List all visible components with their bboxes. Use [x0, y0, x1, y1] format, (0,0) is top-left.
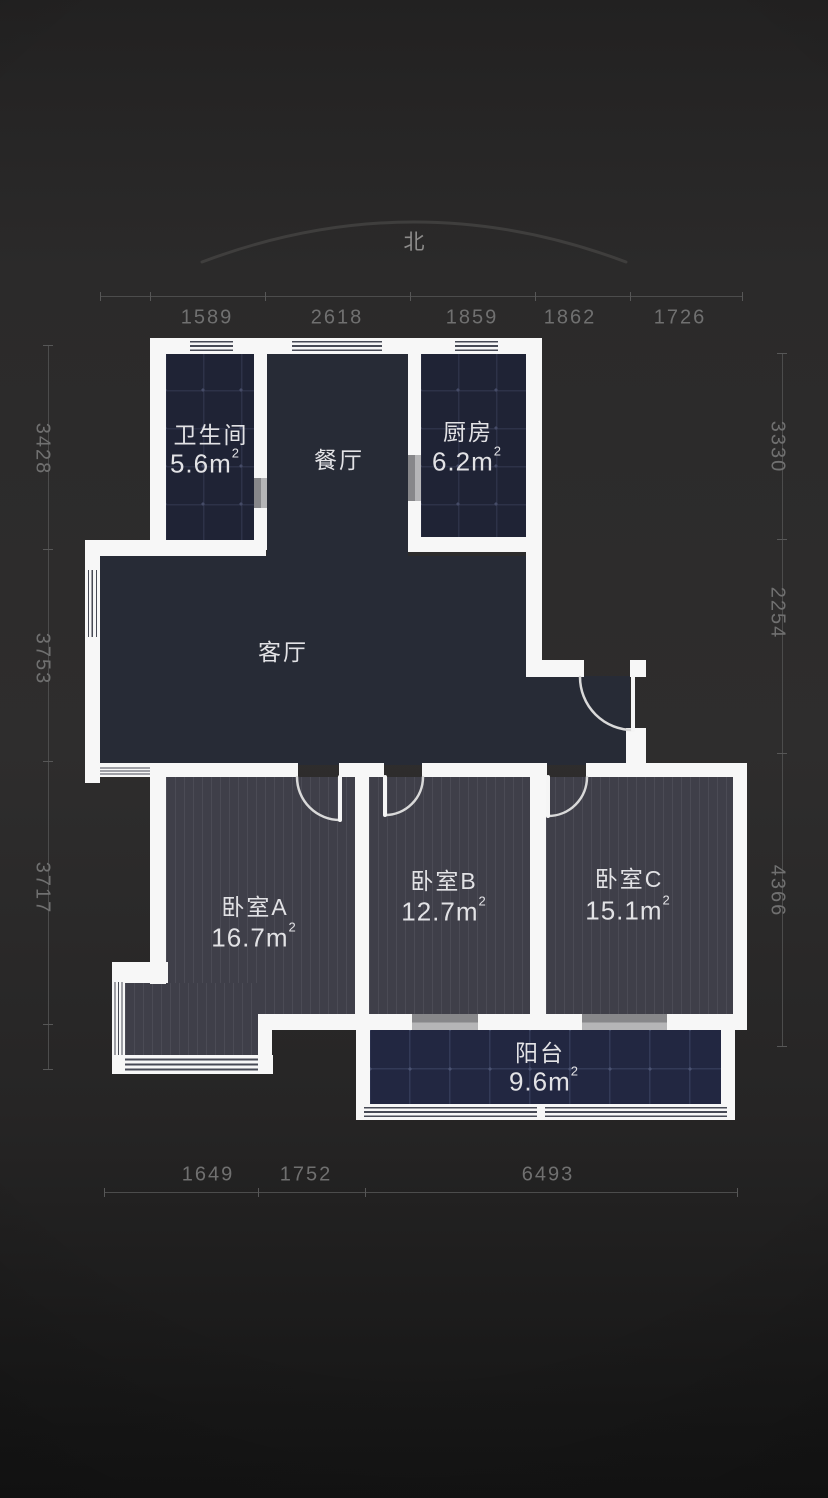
window [85, 570, 100, 637]
bedroom-b-area: 12.7m2 [401, 897, 487, 928]
area-value: 5.6m [170, 449, 232, 479]
dimension-label: 6493 [522, 1164, 575, 1187]
wall [112, 962, 168, 983]
wall [150, 540, 266, 556]
dimension-label: 2618 [311, 307, 364, 330]
window [455, 338, 498, 354]
dimension-label: 1649 [182, 1164, 235, 1187]
area-sup: 2 [479, 894, 487, 909]
area-value: 12.7m [401, 897, 478, 927]
kitchen-sliding-door [408, 455, 421, 501]
dimension-label: 3428 [31, 423, 54, 476]
balcony-sliding-door [582, 1014, 667, 1030]
wall [422, 763, 547, 777]
dimension-tick [100, 292, 101, 301]
balcony-label: 阳台 [515, 1034, 565, 1068]
dimension-label: 1589 [181, 307, 234, 330]
bedroom-c-area: 15.1m2 [585, 896, 671, 927]
dimension-tick [43, 761, 53, 762]
dimension-tick [737, 1188, 738, 1197]
area-sup: 2 [663, 893, 671, 908]
dimension-label: 2254 [766, 587, 789, 640]
living-label: 客厅 [258, 633, 308, 667]
balcony-window [364, 1104, 727, 1120]
dining-label: 餐厅 [314, 441, 364, 475]
dimension-line-top [100, 296, 743, 297]
bedroom-a-label: 卧室A [221, 888, 288, 922]
dimension-label: 3717 [31, 862, 54, 915]
window [100, 765, 150, 777]
window [190, 338, 233, 354]
living-floor-entry [526, 676, 630, 765]
dimension-tick [410, 292, 411, 301]
balcony-sliding-door [412, 1014, 478, 1030]
wall [733, 763, 747, 1030]
dimension-tick [150, 292, 151, 301]
floorplan-canvas: 北 1589 2618 1859 1862 1726 3428 3753 371… [0, 0, 828, 1498]
living-floor [100, 556, 526, 765]
dimension-tick [630, 292, 631, 301]
dimension-label: 3753 [31, 633, 54, 686]
dimension-tick [777, 1046, 787, 1047]
dimension-tick [365, 1188, 366, 1197]
wall [258, 1014, 368, 1030]
bathroom-sliding-door [254, 478, 267, 508]
wall [408, 354, 421, 544]
dimension-tick [43, 345, 53, 346]
wall [630, 660, 646, 677]
wall [408, 537, 542, 552]
dimension-label: 1726 [654, 307, 707, 330]
dimension-line-bottom [104, 1192, 738, 1193]
dimension-tick [265, 292, 266, 301]
window [125, 1055, 258, 1074]
area-sup: 2 [232, 446, 240, 461]
dimension-label: 1862 [544, 307, 597, 330]
dimension-tick [104, 1188, 105, 1197]
area-value: 15.1m [585, 896, 662, 926]
wall [150, 763, 166, 984]
wall [355, 763, 369, 1030]
dimension-label: 1859 [446, 307, 499, 330]
dimension-label: 3330 [766, 421, 789, 474]
wall [254, 354, 267, 550]
window [112, 982, 125, 1055]
wall [150, 338, 166, 544]
dimension-tick [535, 292, 536, 301]
kitchen-label: 厨房 [443, 413, 493, 447]
dimension-label: 1752 [280, 1164, 333, 1187]
window [292, 338, 382, 354]
kitchen-area: 6.2m2 [432, 447, 502, 478]
balcony-area: 9.6m2 [509, 1067, 579, 1098]
bedroom-a-bay-floor [125, 983, 258, 1058]
area-value: 16.7m [211, 923, 288, 953]
wall [530, 763, 546, 1017]
area-value: 6.2m [432, 447, 494, 477]
dimension-tick [258, 1188, 259, 1197]
north-label: 北 [404, 226, 425, 256]
window-post [537, 1104, 545, 1120]
wall [526, 660, 584, 677]
area-sup: 2 [494, 444, 502, 459]
dimension-tick [43, 1069, 53, 1070]
wall [586, 763, 747, 777]
dimension-tick [777, 539, 787, 540]
bedroom-a-area: 16.7m2 [211, 923, 297, 954]
dimension-tick [777, 753, 787, 754]
dimension-tick [43, 1024, 53, 1025]
bedroom-b-label: 卧室B [410, 862, 477, 896]
dimension-label: 4366 [766, 865, 789, 918]
dimension-tick [43, 549, 53, 550]
area-sup: 2 [289, 920, 297, 935]
dimension-tick [742, 292, 743, 301]
area-value: 9.6m [509, 1067, 571, 1097]
wall [526, 338, 542, 664]
dimension-tick [777, 353, 787, 354]
area-sup: 2 [571, 1064, 579, 1079]
bedroom-c-label: 卧室C [595, 860, 664, 894]
bathroom-area: 5.6m2 [170, 449, 240, 480]
